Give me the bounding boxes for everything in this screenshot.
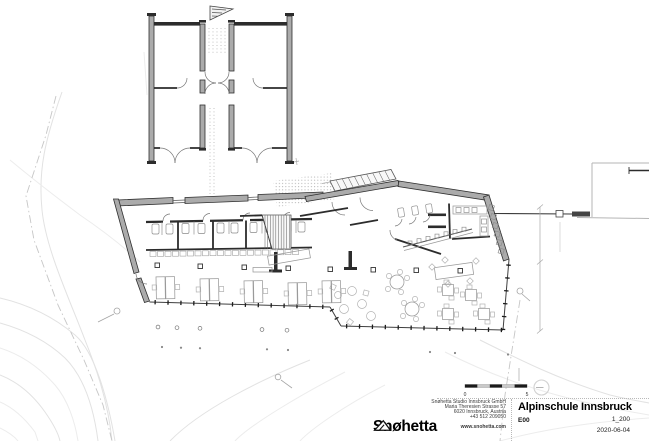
firm-website: www.snohetta.com [420,425,506,430]
square-table [461,285,482,305]
round-table [400,296,424,321]
sheet-code: E00 [518,417,530,424]
firm-address-block: Snøhetta Studio Innsbruck GmbH Maria The… [420,400,506,430]
title-block: Snøhetta Snøhetta Studio Innsbruck GmbH … [0,390,649,441]
section-marker-icon [210,6,233,20]
restaurant-furniture [253,249,495,326]
survey-markers [98,288,530,388]
drawing-sheet: 0 5 Snøhetta Snøhetta Studio Innsbruck G… [0,0,649,441]
square-table [438,280,459,300]
square-table [438,304,459,324]
project-title: Alpinschule Innsbruck [518,401,632,413]
firm-phone: +43 512 209050 [420,415,506,420]
titleblock-divider-vertical [511,399,512,441]
site-bollards [156,325,509,356]
drawing-scale: 1_200 [560,416,630,423]
square-table [474,304,495,324]
round-table [385,269,409,294]
entry-paving [273,173,336,207]
mountain-icon [373,418,392,433]
main-building [114,170,510,331]
neighbor-structure [494,163,649,252]
columns [155,263,463,273]
floor-plan-drawing: 0 5 [0,0,649,441]
terrain-contours [0,52,649,441]
drawing-date: 2020-06-04 [560,427,630,434]
annex-building [147,6,294,194]
